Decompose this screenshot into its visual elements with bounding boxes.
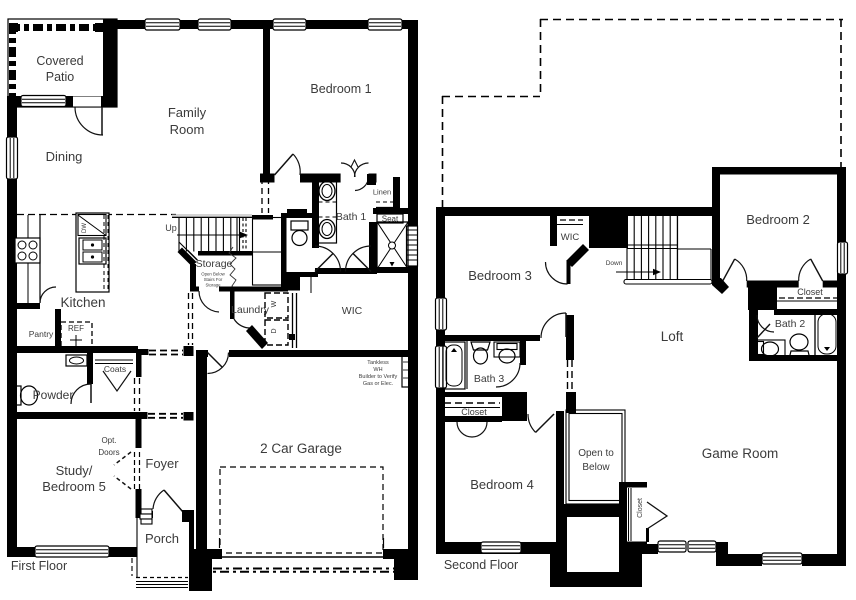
svg-text:Bedroom 3: Bedroom 3 [468, 268, 532, 283]
svg-text:Bath 3: Bath 3 [474, 373, 505, 385]
svg-text:Open to: Open to [578, 448, 614, 459]
svg-text:Bath 2: Bath 2 [775, 318, 806, 330]
svg-text:Storage: Storage [205, 283, 221, 288]
svg-text:D: D [271, 328, 278, 333]
svg-text:Powder: Powder [33, 388, 74, 402]
svg-text:Doors: Doors [98, 448, 119, 457]
svg-text:Loft: Loft [661, 329, 684, 344]
svg-text:DW: DW [82, 223, 88, 233]
svg-text:Closet: Closet [797, 287, 823, 297]
svg-text:Kitchen: Kitchen [60, 295, 105, 310]
svg-text:Bedroom 4: Bedroom 4 [470, 477, 534, 492]
svg-text:Second Floor: Second Floor [444, 558, 518, 572]
svg-text:Closet: Closet [461, 407, 487, 417]
svg-text:Up: Up [165, 223, 177, 233]
svg-text:Pantry: Pantry [29, 329, 54, 339]
svg-text:WH: WH [373, 367, 382, 373]
svg-text:2 Car Garage: 2 Car Garage [260, 441, 342, 456]
svg-text:Builder to Verify: Builder to Verify [359, 374, 398, 380]
svg-text:Open Below: Open Below [201, 272, 225, 277]
svg-text:W: W [271, 300, 278, 307]
svg-text:Opt.: Opt. [101, 436, 116, 445]
svg-text:WIC: WIC [561, 232, 580, 243]
svg-text:Foyer: Foyer [145, 456, 179, 471]
svg-text:Below: Below [582, 462, 610, 473]
svg-text:REF: REF [68, 324, 84, 333]
svg-text:Coats: Coats [104, 364, 126, 374]
svg-text:Laundry: Laundry [231, 304, 270, 316]
svg-text:Dining: Dining [46, 149, 83, 164]
svg-text:Tankless: Tankless [367, 360, 389, 366]
svg-text:Closet: Closet [637, 498, 644, 518]
svg-text:Study/: Study/ [56, 463, 93, 478]
svg-text:Family: Family [168, 105, 207, 120]
svg-text:Gas or Elec.: Gas or Elec. [363, 381, 394, 387]
svg-text:Bedroom 5: Bedroom 5 [42, 479, 106, 494]
svg-text:Storage: Storage [196, 258, 233, 270]
svg-text:Stairs For: Stairs For [204, 277, 223, 282]
svg-text:Covered: Covered [36, 54, 83, 68]
svg-text:Bath 1: Bath 1 [336, 211, 367, 223]
svg-text:Bedroom 1: Bedroom 1 [310, 82, 371, 96]
svg-text:Porch: Porch [145, 531, 179, 546]
svg-text:Down: Down [606, 260, 623, 267]
svg-text:Bedroom 2: Bedroom 2 [746, 212, 810, 227]
svg-text:Patio: Patio [46, 70, 75, 84]
svg-text:First Floor: First Floor [11, 559, 67, 573]
svg-text:Game Room: Game Room [702, 446, 779, 461]
svg-text:Linen: Linen [373, 188, 391, 197]
svg-text:Room: Room [170, 122, 205, 137]
svg-text:WIC: WIC [342, 305, 363, 317]
